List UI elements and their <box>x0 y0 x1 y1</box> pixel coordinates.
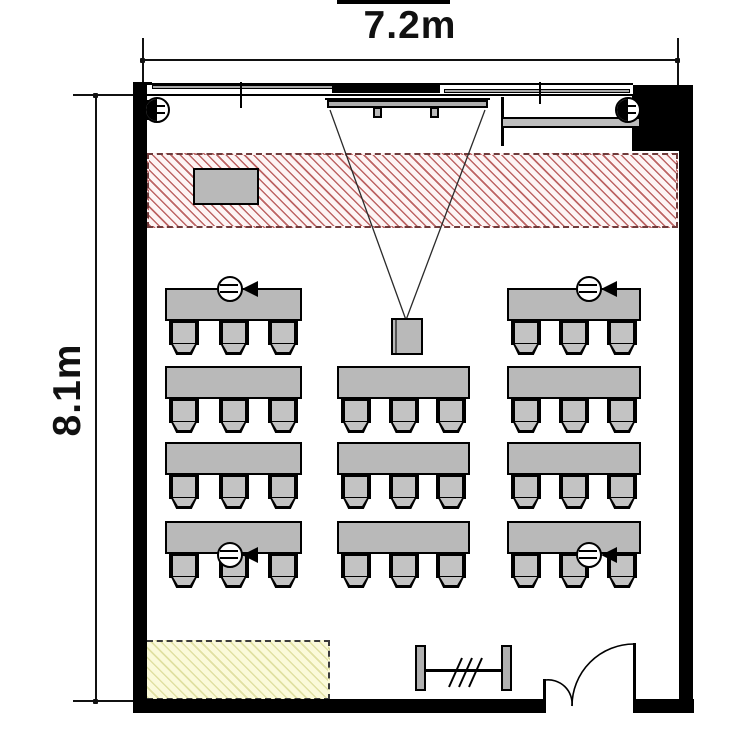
outlet-line <box>220 557 238 559</box>
presenter-desk <box>193 168 259 205</box>
wall-outlet-icon-1 <box>144 97 188 123</box>
chair-seat <box>169 399 199 423</box>
screen-bracket-right <box>430 107 439 118</box>
chair-left-row3-1 <box>169 475 199 510</box>
chair-seat <box>268 321 298 345</box>
floor-outlet-icon-4 <box>576 542 620 568</box>
chair-left-row4-1 <box>169 554 199 589</box>
chair-right-row2-2 <box>559 399 589 434</box>
projector-lens-line <box>395 320 397 353</box>
desk-right-row4 <box>507 521 641 554</box>
chair-center-row4-3 <box>436 554 466 589</box>
outlet-circle-icon <box>576 276 602 302</box>
door-small-leaf-stub <box>543 679 546 700</box>
chair-seat <box>219 321 249 345</box>
desk-center-row4 <box>337 521 470 554</box>
floor-outlet-icon-2 <box>576 276 620 302</box>
wall-outlet-icon-2 <box>615 97 659 123</box>
floor-plan: 7.2m 8.1m <box>0 0 750 750</box>
outlet-line <box>220 291 238 293</box>
chair-seat <box>268 399 298 423</box>
outlet-arrow-icon <box>601 281 617 297</box>
chair-seat <box>607 475 637 499</box>
chair-seat <box>511 399 541 423</box>
outlet-line <box>220 284 238 286</box>
chair-center-row3-2 <box>389 475 419 510</box>
chair-left-row1-2 <box>219 321 249 356</box>
desk-right-row2 <box>507 366 641 399</box>
door-swing-arcs <box>545 644 634 706</box>
outlet-arrow-icon <box>242 547 258 563</box>
chair-right-row3-1 <box>511 475 541 510</box>
chair-center-row2-3 <box>436 399 466 434</box>
window-pane-right <box>444 89 630 93</box>
chair-left-row3-2 <box>219 475 249 510</box>
chair-seat <box>341 399 371 423</box>
desk-center-row3 <box>337 442 470 475</box>
bottom-wall-right-segment <box>633 699 694 713</box>
depth-dim-dot-top <box>93 93 98 98</box>
chair-right-row1-1 <box>511 321 541 356</box>
projection-screen <box>327 100 488 108</box>
depth-dimension-line <box>95 94 97 702</box>
chair-center-row4-1 <box>341 554 371 589</box>
coat-rack-post-left <box>415 645 426 691</box>
chair-seat <box>389 399 419 423</box>
depth-dim-tick-bottom <box>73 700 135 702</box>
chair-seat <box>268 554 298 578</box>
chair-left-row1-1 <box>169 321 199 356</box>
chair-center-row2-1 <box>341 399 371 434</box>
outlet-line <box>220 550 238 552</box>
coat-rack-bar <box>426 669 501 672</box>
chair-seat <box>436 475 466 499</box>
chair-seat <box>341 554 371 578</box>
chair-seat <box>268 475 298 499</box>
chair-left-row2-3 <box>268 399 298 434</box>
width-dim-dot-right <box>675 58 680 63</box>
chair-seat <box>511 475 541 499</box>
screen-case <box>332 83 440 93</box>
outlet-line <box>579 550 597 552</box>
chair-right-row1-3 <box>607 321 637 356</box>
chair-center-row3-1 <box>341 475 371 510</box>
chair-seat <box>511 554 541 578</box>
storage-zone <box>147 640 330 700</box>
floor-outlet-icon-1 <box>217 276 261 302</box>
bottom-wall-left-segment <box>133 699 546 713</box>
chair-seat <box>389 475 419 499</box>
chair-seat <box>559 475 589 499</box>
floor-outlet-icon-3 <box>217 542 261 568</box>
chair-right-row1-2 <box>559 321 589 356</box>
chair-right-row4-1 <box>511 554 541 589</box>
chair-seat <box>436 554 466 578</box>
window-pane-left <box>152 85 334 89</box>
left-wall <box>133 82 147 713</box>
chair-right-row2-3 <box>607 399 637 434</box>
outlet-arrow-icon <box>601 547 617 563</box>
chair-left-row2-2 <box>219 399 249 434</box>
depth-dim-tick-top <box>73 94 135 96</box>
outlet-line <box>579 291 597 293</box>
chair-seat <box>607 399 637 423</box>
chair-seat <box>511 321 541 345</box>
screen-bracket-left <box>373 107 382 118</box>
chair-left-row3-3 <box>268 475 298 510</box>
coat-rack-post-right <box>501 645 512 691</box>
chair-seat <box>169 475 199 499</box>
chair-seat <box>169 321 199 345</box>
chair-right-row2-1 <box>511 399 541 434</box>
outlet-circle-icon <box>217 542 243 568</box>
chair-seat <box>559 321 589 345</box>
chair-seat <box>607 321 637 345</box>
chair-center-row3-3 <box>436 475 466 510</box>
chair-right-row3-3 <box>607 475 637 510</box>
desk-right-row3 <box>507 442 641 475</box>
chair-seat <box>219 399 249 423</box>
hanger-slash-icons <box>449 658 482 687</box>
desk-right-row1 <box>507 288 641 321</box>
chair-center-row2-2 <box>389 399 419 434</box>
width-dimension-line <box>142 59 678 61</box>
chair-left-row1-3 <box>268 321 298 356</box>
chair-seat <box>341 475 371 499</box>
chair-seat <box>559 399 589 423</box>
outlet-arrow-icon <box>242 281 258 297</box>
desk-left-row3 <box>165 442 302 475</box>
chair-seat <box>389 554 419 578</box>
chair-seat <box>169 554 199 578</box>
window-mullion-left <box>240 82 242 108</box>
right-wall <box>679 85 693 713</box>
width-dimension-label: 7.2m <box>310 4 510 48</box>
outlet-circle-icon <box>576 542 602 568</box>
chair-left-row2-1 <box>169 399 199 434</box>
depth-dim-dot-bottom <box>93 699 98 704</box>
desk-center-row2 <box>337 366 470 399</box>
window-mullion-right <box>539 82 541 104</box>
door-leaf <box>633 643 636 701</box>
chair-left-row4-3 <box>268 554 298 589</box>
outlet-line <box>579 557 597 559</box>
desk-left-row2 <box>165 366 302 399</box>
outlet-circle-icon <box>217 276 243 302</box>
depth-dimension-label: 8.1m <box>46 290 90 490</box>
chair-seat <box>219 475 249 499</box>
chair-center-row4-2 <box>389 554 419 589</box>
chair-seat <box>436 399 466 423</box>
chair-right-row3-2 <box>559 475 589 510</box>
width-dim-dot-left <box>140 58 145 63</box>
outlet-line <box>579 284 597 286</box>
